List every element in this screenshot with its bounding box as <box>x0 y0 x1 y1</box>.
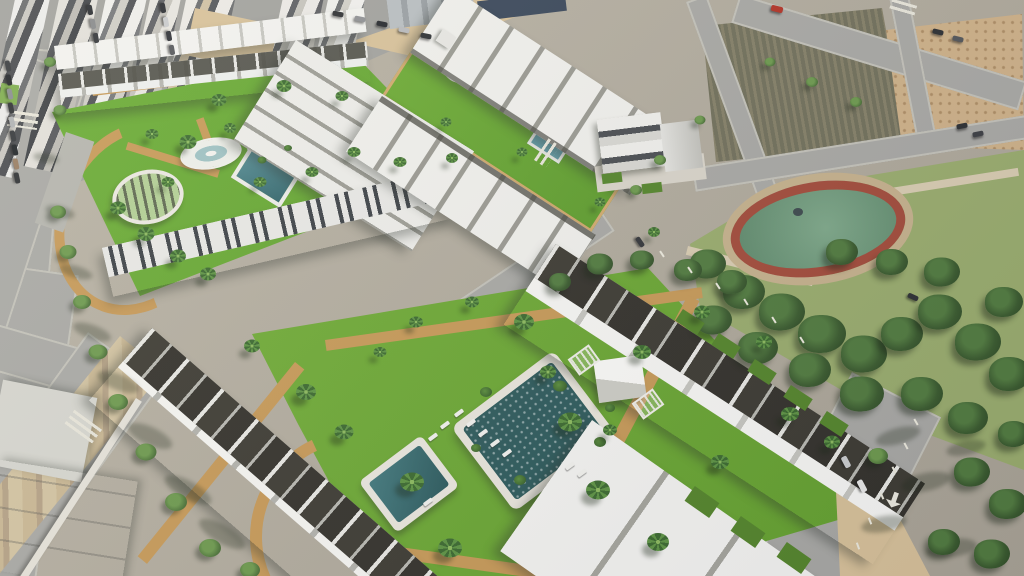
car <box>11 144 18 156</box>
stree <box>73 295 91 309</box>
car <box>856 479 867 493</box>
lounger <box>454 408 464 417</box>
stree <box>165 493 187 511</box>
stree <box>868 448 888 464</box>
garden <box>685 486 720 518</box>
tree <box>840 377 884 412</box>
car <box>635 236 645 248</box>
stree <box>654 155 666 165</box>
palm <box>180 135 197 149</box>
car <box>4 60 11 72</box>
car <box>87 5 94 16</box>
palm <box>603 425 617 436</box>
palm <box>441 118 452 127</box>
shrub <box>258 157 267 164</box>
tree <box>789 353 831 387</box>
lounger <box>478 428 488 437</box>
palm <box>824 436 840 449</box>
dash <box>892 466 897 473</box>
palm <box>170 250 186 263</box>
palm <box>633 345 651 359</box>
palm <box>438 539 462 558</box>
car <box>420 32 432 39</box>
tree <box>798 315 846 353</box>
tree <box>948 402 988 434</box>
car <box>972 130 984 137</box>
palm <box>200 268 216 281</box>
palm <box>400 473 424 492</box>
shrub <box>471 444 481 452</box>
garden <box>601 172 622 184</box>
palm <box>296 384 316 400</box>
tree <box>918 295 962 330</box>
garden <box>747 359 776 385</box>
palm <box>694 306 710 319</box>
palm <box>374 347 387 357</box>
stree <box>44 57 56 67</box>
tshadow <box>71 319 113 346</box>
stree <box>240 562 260 576</box>
car <box>907 292 919 301</box>
palm <box>648 227 660 237</box>
car <box>13 172 20 184</box>
tree <box>841 336 887 373</box>
stree <box>630 185 642 195</box>
tshadow <box>900 468 953 496</box>
car <box>6 88 13 100</box>
palm <box>394 157 407 167</box>
aerial-scene <box>0 0 1024 576</box>
car <box>398 26 410 33</box>
tree <box>989 357 1024 391</box>
tshadow <box>860 512 908 536</box>
tree <box>989 489 1024 519</box>
palm <box>711 455 729 469</box>
car <box>160 3 167 14</box>
car <box>169 45 176 56</box>
lounger <box>428 432 438 441</box>
lounger <box>440 420 450 429</box>
tree <box>924 258 960 287</box>
lounger <box>502 448 512 457</box>
car <box>956 122 968 129</box>
dot <box>793 208 803 216</box>
stree <box>136 444 157 461</box>
shrub <box>605 404 615 412</box>
car <box>93 33 100 44</box>
car <box>7 102 14 114</box>
tree <box>549 273 571 291</box>
tree <box>985 287 1023 317</box>
palm <box>212 94 227 106</box>
palm <box>348 147 361 157</box>
stree <box>50 206 66 219</box>
palm <box>514 314 534 330</box>
dash <box>880 492 885 499</box>
palm <box>647 533 669 551</box>
tshadow <box>874 422 923 449</box>
shrub <box>553 381 567 392</box>
lounger <box>490 438 500 447</box>
car <box>8 116 15 128</box>
palm <box>409 317 423 328</box>
palm <box>254 177 267 187</box>
car <box>9 130 16 142</box>
car <box>332 10 344 17</box>
car <box>12 158 19 170</box>
palm <box>781 407 799 421</box>
shrub <box>284 145 292 151</box>
palm <box>465 297 479 308</box>
stree <box>54 105 67 115</box>
palm <box>162 177 175 187</box>
stree <box>108 394 128 410</box>
dash <box>903 442 908 449</box>
palm <box>335 425 354 440</box>
stree <box>695 116 706 125</box>
shrub <box>594 437 606 447</box>
stree <box>765 58 776 67</box>
tree <box>876 249 908 275</box>
tshadow <box>945 437 987 459</box>
tshadow <box>58 262 94 283</box>
shrub <box>480 387 492 397</box>
dash <box>913 418 918 425</box>
lounger <box>423 497 433 506</box>
car <box>90 19 97 30</box>
tree <box>587 254 613 275</box>
palm <box>558 413 582 432</box>
tshadow <box>95 366 142 397</box>
stree <box>806 77 818 87</box>
tree <box>881 317 923 351</box>
tree <box>759 294 805 331</box>
car <box>166 31 173 42</box>
dash <box>856 542 860 549</box>
palm <box>277 80 292 92</box>
garden <box>819 411 848 437</box>
tree <box>955 324 1001 361</box>
car <box>5 74 12 86</box>
car <box>952 35 964 43</box>
stree <box>199 539 221 557</box>
tree <box>998 421 1024 447</box>
tree <box>954 458 990 487</box>
garden <box>777 542 812 574</box>
garden <box>731 516 766 548</box>
lounger <box>577 468 587 477</box>
tree <box>826 239 858 265</box>
car <box>770 5 783 14</box>
palm <box>446 153 458 163</box>
dash <box>659 251 665 258</box>
tree <box>630 251 654 270</box>
lounger <box>466 418 476 427</box>
car <box>932 28 944 36</box>
palm <box>586 481 610 500</box>
palm <box>306 167 319 177</box>
palm <box>517 148 528 157</box>
palm <box>244 340 260 353</box>
palm <box>336 91 349 101</box>
garden <box>641 182 662 194</box>
sprite-layer <box>0 0 1024 576</box>
car <box>376 20 388 27</box>
car <box>841 455 852 468</box>
palm <box>138 227 155 241</box>
palm <box>146 129 159 139</box>
pergola <box>632 388 665 419</box>
palm <box>595 198 606 207</box>
palm <box>224 123 236 133</box>
stree <box>89 345 108 360</box>
palm <box>110 202 126 215</box>
pergola <box>568 344 601 375</box>
palm <box>540 366 556 379</box>
palm <box>756 336 772 349</box>
car <box>354 15 366 22</box>
stree <box>60 245 77 259</box>
tree <box>901 377 943 411</box>
stree <box>850 97 862 107</box>
tree <box>974 540 1010 569</box>
lounger <box>565 461 575 470</box>
car <box>163 17 170 28</box>
shrub <box>514 475 526 485</box>
tshadow <box>32 151 59 165</box>
garden <box>711 333 740 359</box>
